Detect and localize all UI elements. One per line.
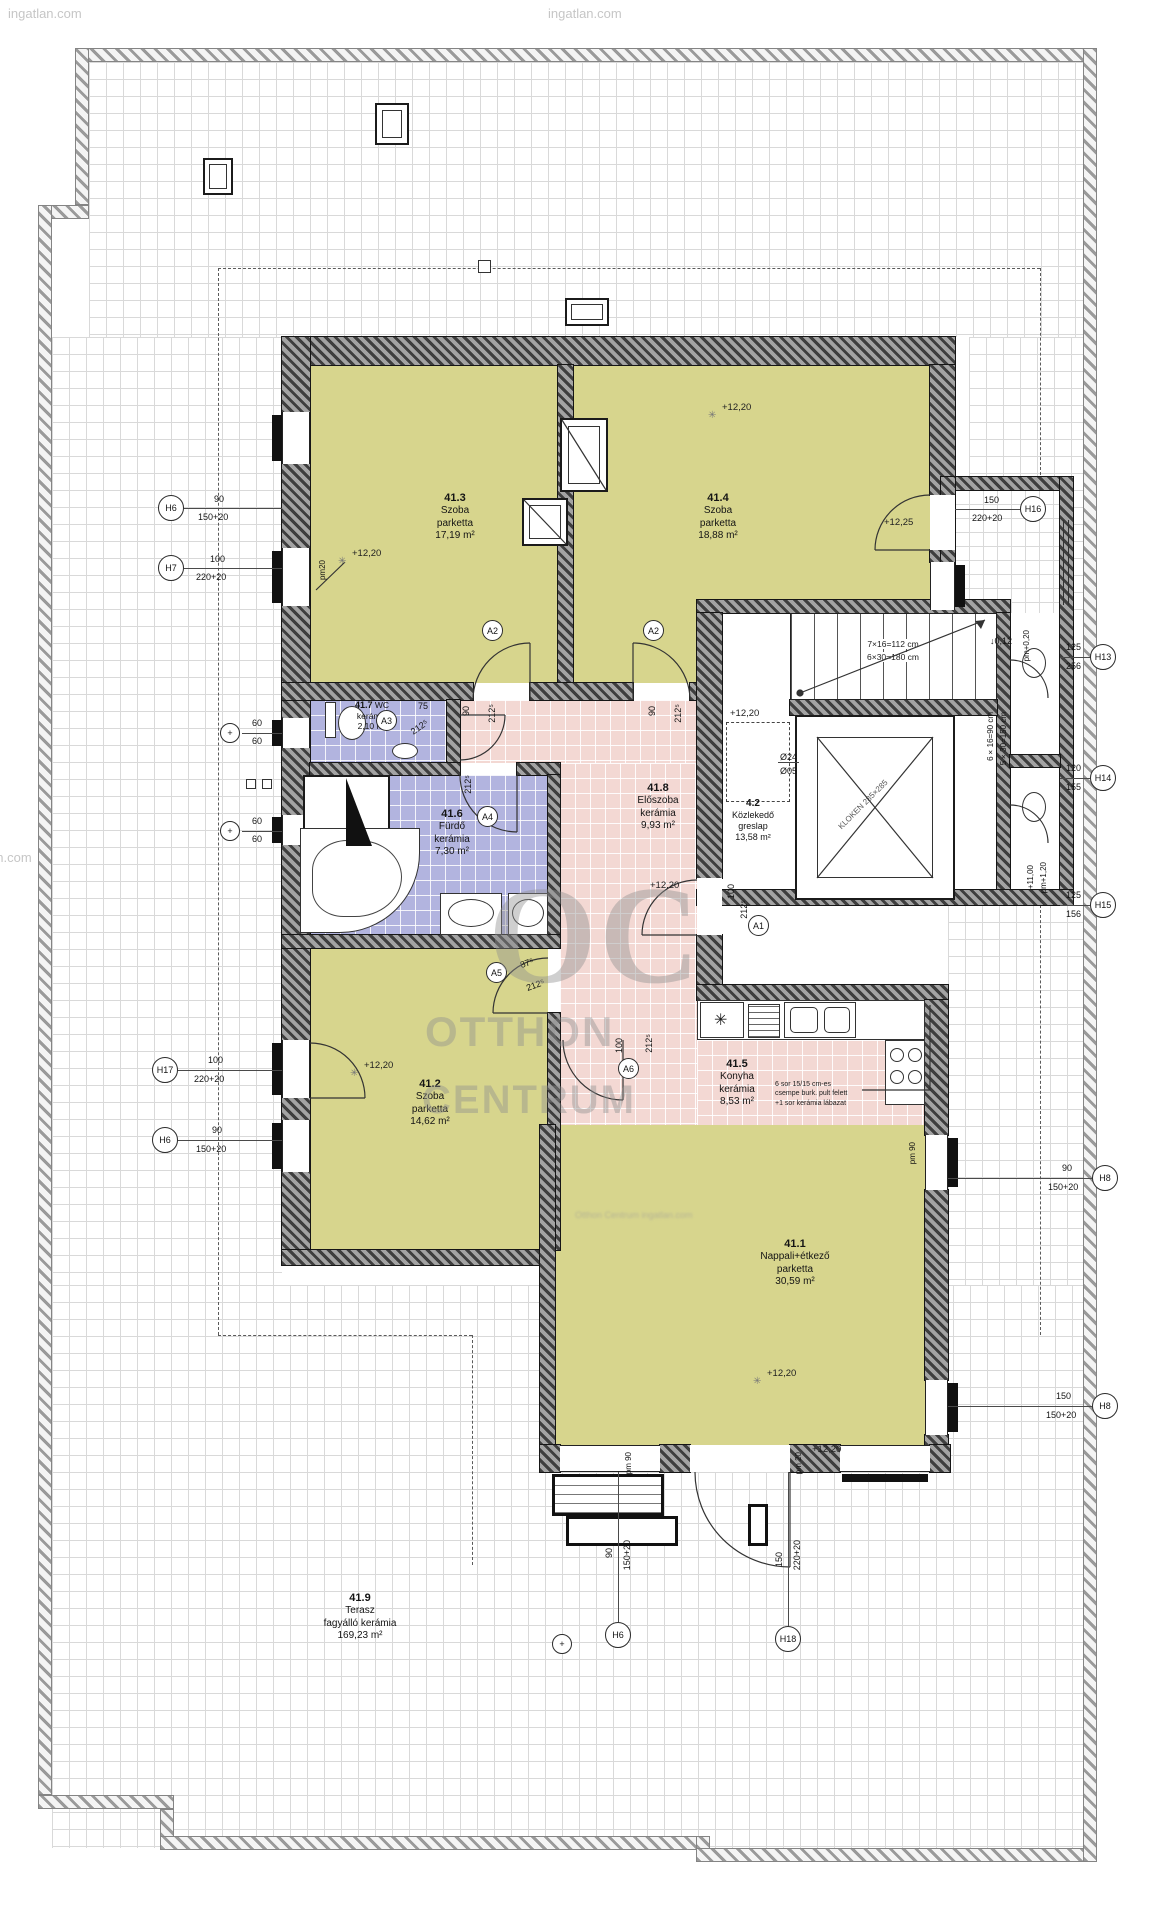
exterior-box [748,1504,768,1546]
floor-plan: 7×16=112 cm 6×30=180 cm KLOKEN 285×285 ✳ [0,0,1153,1920]
dashed-line [1040,905,1041,1335]
cooktop-burner [908,1048,922,1062]
room-label-41-5: 41.5 Konyha kerámia 8,53 m² [719,1058,755,1108]
room-41-4-fill2 [573,600,697,683]
wall [790,700,997,715]
sparkle-icon: ✳ [708,410,716,421]
room-label-41-4: 41.4 Szoba parketta 18,88 m² [698,492,737,542]
room-label-41-3: 41.3 Szoba parketta 17,19 m² [435,492,474,542]
window [282,548,310,606]
door-code: A2 [482,620,503,641]
side-stair-dim: 5×30=150 cm [999,712,1008,765]
door-dim: 100 [726,884,736,899]
dashed-line [1040,268,1041,480]
window-type-circle: H6 [152,1127,178,1153]
wall [530,683,633,700]
roof-marker [478,260,491,273]
wall [925,1190,948,1380]
door-dim: 100 [614,1038,624,1053]
dashed-line [218,268,1040,269]
window-sill [948,1383,958,1432]
window [282,718,310,748]
room-name: Szoba [441,505,469,516]
leader-line [178,1070,282,1071]
window-type-circle: H17 [152,1057,178,1083]
pm-note: pm+0,20 [1022,630,1031,661]
leader-line [184,508,282,509]
level-marker: +12,20 [364,1060,393,1071]
room-41-1-fill [555,1125,925,1445]
dishwasher [748,1004,780,1038]
window [282,412,310,464]
leader-line [178,1140,282,1141]
leader-line [948,1406,1092,1407]
room-label-41-1: 41.1 Nappali+étkező parketta 30,59 m² [760,1238,829,1288]
railing [1063,520,1069,605]
wall [925,1000,948,1135]
room-area: 17,19 m² [435,530,474,541]
leader-line [955,509,1020,510]
door-dim: 75 [418,701,428,711]
sparkle-icon: ✳ [350,1068,358,1079]
stair-dim-2: 6×30=180 cm [865,652,921,662]
wall [930,1445,950,1472]
kitchen-note: 6 sor 15/15 cm-es csempe burk. pult fele… [775,1080,847,1108]
dia-05: Ø05 [778,766,799,776]
watermark-ingatlan: ingatlan.com [8,6,82,21]
wall [697,985,948,1000]
watermark-otthon: OTTHON [425,1008,614,1056]
room-id: 41.3 [444,492,465,504]
corner-sink [392,743,418,759]
door-dim: 212⁵ [673,704,683,723]
leader-line [1060,905,1090,906]
sink-basin [790,1007,818,1033]
window-sill [842,1474,928,1482]
window [925,1135,948,1190]
wall [282,683,473,700]
watermark-oc-logo: OC [488,855,702,1016]
room-label-4-2: 4.2 Közlekedő greslap 13,58 m² [732,798,774,843]
sparkle-icon: ✳ [753,1376,761,1387]
window-type-circle: H8 [1092,1393,1118,1419]
sparkle-icon: ✳ [338,556,346,567]
parapet-left [38,205,52,1795]
door-code: A2 [643,620,664,641]
watermark-ingatlan: ingatlan.com [548,6,622,21]
roof-marker [262,779,272,789]
window [282,1040,310,1098]
window-sill [272,415,282,461]
level-marker: +12,20 [352,548,381,559]
door-dim: 212⁵ [463,775,473,794]
room-41-4-fill [573,365,930,600]
roof-window [565,298,609,326]
wc-cistern [325,702,336,738]
survey-circle: + [220,821,240,841]
wall [660,1445,690,1472]
window-sill [272,1123,282,1169]
room-41-3-fill [310,365,558,683]
wall [697,613,722,878]
roof-window [375,103,409,145]
door-dim: 212⁵ [487,704,497,723]
pm20-note: pm20 [318,560,327,580]
watermark-blur-line: Otthon Centrum ingatlan.com [575,1210,693,1220]
window-sill [272,1043,282,1095]
parapet-right [1083,48,1097,1862]
door-dim: 90 [647,706,657,716]
leader-line [788,1472,789,1626]
pm90-note: pm 90 [624,1452,633,1474]
level-marker: +12,20 [812,1444,841,1455]
wall [930,365,955,495]
shaft-window [560,418,608,492]
dashed-line [218,1335,472,1336]
window-type-circle: H15 [1090,892,1116,918]
pm-note: pm+1,20 [1039,862,1048,893]
level-marker: +12,20 [767,1368,796,1379]
watermark-centrum: CENTRUM [422,1078,636,1123]
pm90-note: pm 90 [908,1142,917,1164]
parapet-bottom-left [160,1836,710,1850]
leader-line [184,568,282,569]
leader-line [242,831,282,832]
wall [925,1435,948,1445]
shaft-window [522,498,568,546]
cooktop-burner [908,1070,922,1084]
door-code: A1 [748,915,769,936]
level-marker: +12,20 [730,708,759,719]
wall [540,1125,555,1445]
door-code: A4 [477,806,498,827]
wall [282,337,955,365]
pm20-note: pm 20 [794,1452,803,1474]
window-sill [272,817,282,843]
window [840,1445,930,1472]
window-type-circle: H6 [158,495,184,521]
room-label-41-8: 41.8 Előszoba kerámia 9,93 m² [637,782,678,832]
toilet-icon [1022,792,1046,822]
window [930,562,955,610]
leader-line [1060,778,1090,779]
parapet-topleft-v [75,48,89,205]
fridge-star-icon: ✳ [714,1010,727,1030]
door-opening [930,495,955,550]
window-type-circle: H13 [1090,644,1116,670]
door-code: A3 [376,710,397,731]
stair-dims: 7×16=112 cm 6×30=180 cm [865,638,921,664]
window-type-circle: H14 [1090,765,1116,791]
terrace-grid-right-low [948,905,1083,1285]
side-stair-dim: 6×16=90 cm [986,712,995,761]
parapet-bl-h [38,1795,174,1809]
room-label-41-6: 41.6 Fürdő kerámia 7,30 m² [434,808,470,858]
door-dim: 212⁵ [739,900,749,919]
sink-drain [824,1007,850,1033]
door-opening [690,1445,790,1472]
window-type-circle: H8 [1092,1165,1118,1191]
dashed-line [218,268,219,1335]
parapet-top [75,48,1097,62]
window-type-circle: H18 [775,1626,801,1652]
terrace-grid-top [89,62,1083,337]
window-sill [955,565,965,607]
window-type-circle: H7 [158,555,184,581]
roof-window [203,158,233,195]
window [560,1445,660,1472]
wall [941,477,1073,490]
window [282,1120,310,1172]
door-dim: 212⁵ [644,1034,654,1053]
leader-line [1060,657,1090,658]
level-marker: +12,20 [722,402,751,413]
leader-line [618,1472,619,1622]
drop-note: ↓0,12 [990,636,1012,646]
dashed-line [472,1335,473,1565]
window-sill [948,1138,958,1187]
parapet-bottom-right [696,1848,1097,1862]
level-note: +11,00 [1026,865,1035,889]
wall [690,683,697,700]
wall [1010,755,1060,767]
door-dim: 90 [461,706,471,716]
roof-marker [246,779,256,789]
room-finish: parketta [437,518,473,529]
door-code: A6 [618,1058,639,1079]
window-type-circle: H16 [1020,496,1046,522]
leader-line [948,1178,1092,1179]
exterior-step-box [552,1474,664,1516]
survey-circle: + [552,1634,572,1654]
cooktop-burner [890,1048,904,1062]
stair-dim-1: 7×16=112 cm [865,639,920,649]
wall [310,763,460,775]
level-marker: +12,25 [884,517,913,528]
room-label-41-9: 41.9 Terasz fagyálló kerámia 169,23 m² [324,1592,397,1642]
survey-circle: + [220,723,240,743]
window [925,1380,948,1435]
watermark-ingatlan: ingatlan.com [0,850,32,865]
elevator-car [817,737,933,878]
wall [517,763,560,775]
cooktop-burner [890,1070,904,1084]
window-type-circle: H6 [605,1622,631,1648]
window-sill [272,551,282,603]
dia-24: Ø24 [778,752,799,763]
leader-line [242,733,282,734]
wall [282,1250,555,1265]
wall [540,1445,560,1472]
